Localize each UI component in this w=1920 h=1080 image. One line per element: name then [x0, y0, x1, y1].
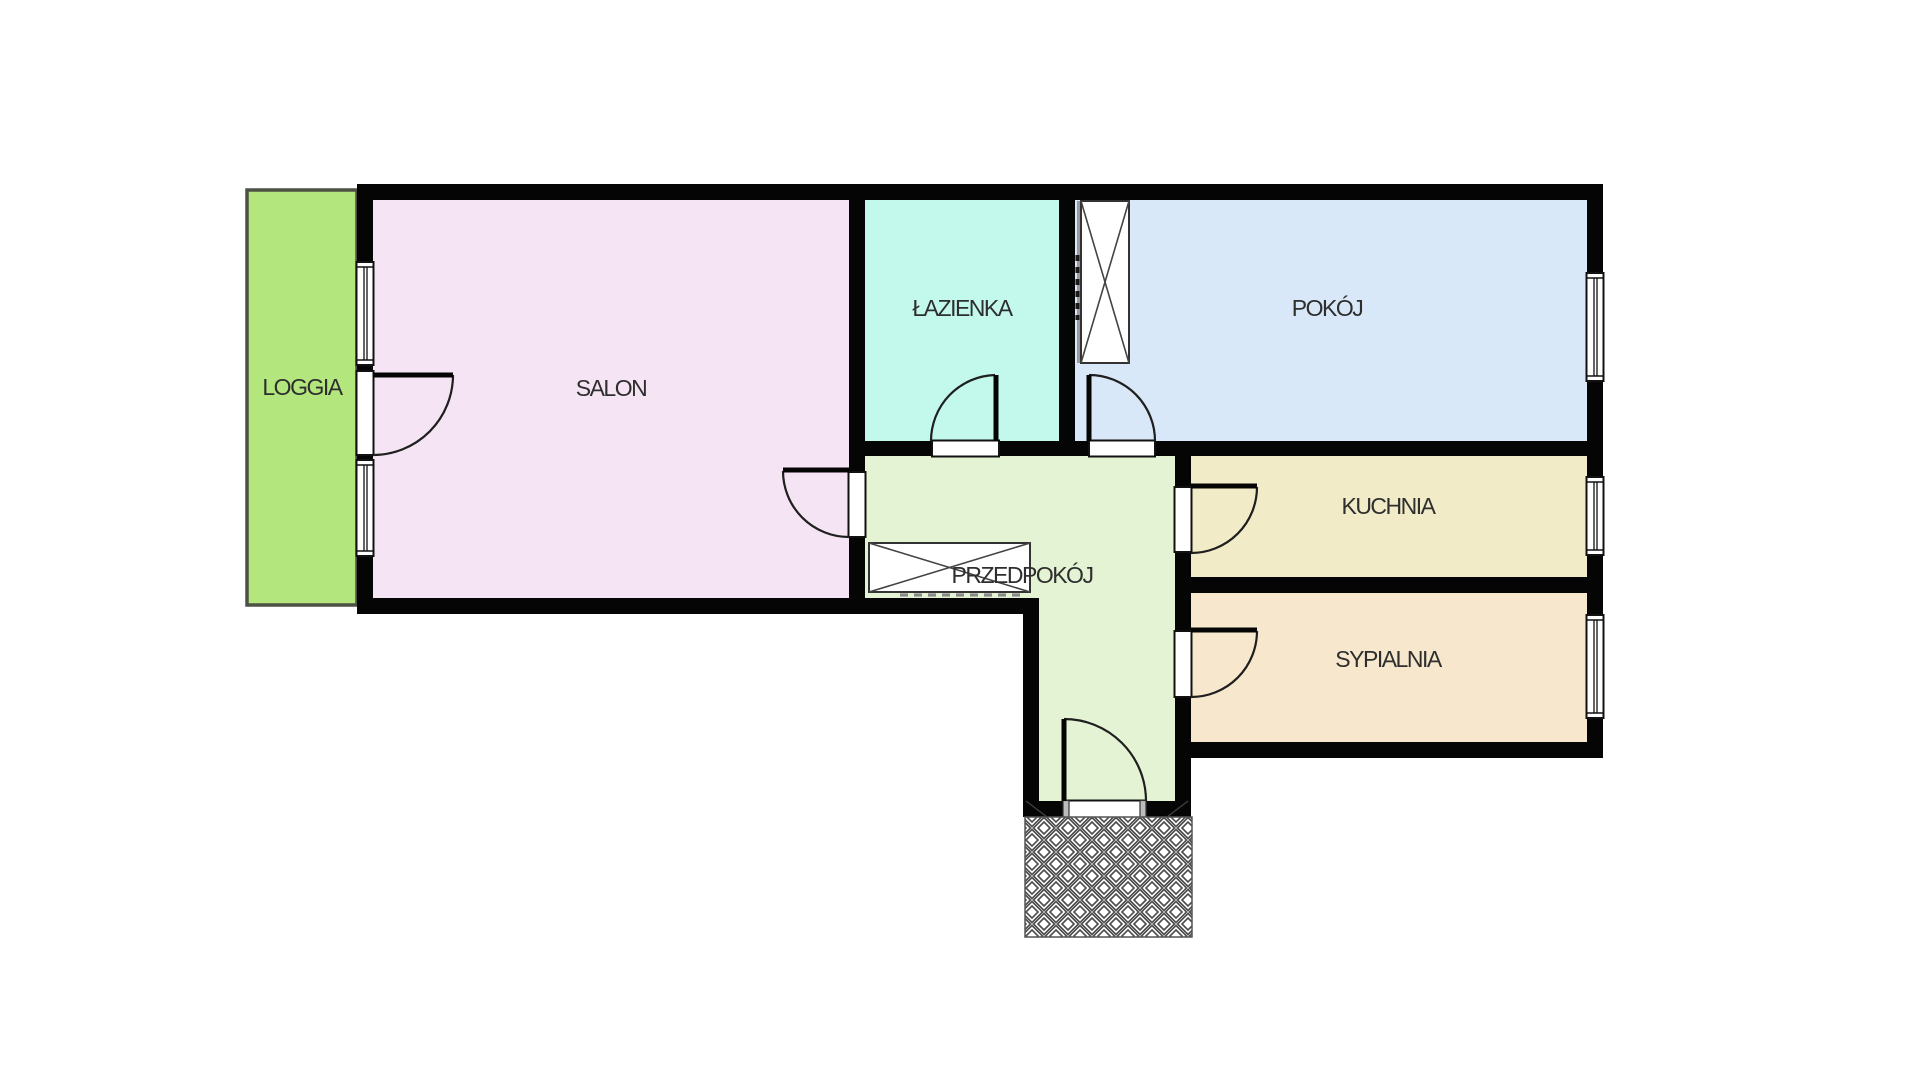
- svg-text:POKÓJ: POKÓJ: [1292, 295, 1362, 321]
- svg-text:SALON: SALON: [576, 375, 646, 401]
- svg-text:KUCHNIA: KUCHNIA: [1341, 493, 1436, 519]
- svg-text:ŁAZIENKA: ŁAZIENKA: [912, 295, 1013, 321]
- svg-text:SYPIALNIA: SYPIALNIA: [1335, 646, 1443, 672]
- svg-text:LOGGIA: LOGGIA: [262, 374, 343, 400]
- svg-text:PRZEDPOKÓJ: PRZEDPOKÓJ: [952, 562, 1093, 588]
